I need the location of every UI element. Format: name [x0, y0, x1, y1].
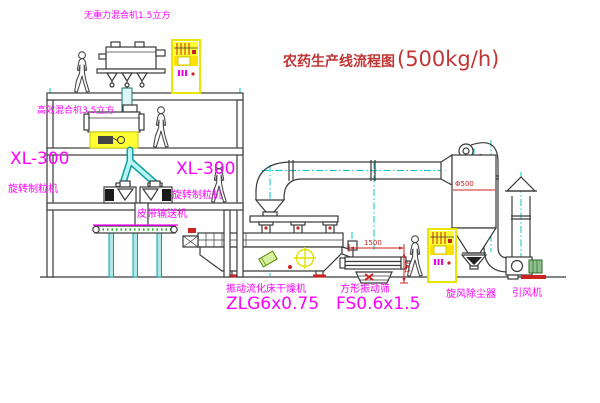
label-granulator-right-model: XL-300 — [176, 161, 235, 178]
dim-cyclone: Φ500 — [455, 181, 474, 188]
control-cabinet-upper — [172, 40, 200, 93]
induced-draft-fan — [506, 257, 546, 279]
flow-diagram-canvas: 农药生产线流程图 (500kg/h) 无重力混合机1.5立方 高效混合机3.5立… — [0, 0, 600, 403]
control-cabinet-lower — [428, 229, 456, 282]
label-fan: 引风机 — [512, 289, 542, 299]
title-capacity: (500kg/h) — [397, 47, 499, 71]
exhaust-duct — [256, 155, 452, 216]
gravity-free-mixer — [97, 42, 165, 114]
dim-screen-side: 341 — [403, 260, 410, 273]
granulator-left — [104, 181, 136, 203]
belt-conveyor — [93, 225, 196, 277]
label-granulator-right-name: 旋转制粒机 — [172, 191, 222, 201]
label-dryer-model: ZLG6x0.75 — [226, 296, 319, 313]
dim-screen-length: 1500 — [364, 240, 382, 247]
label-cyclone: 旋风除尘器 — [446, 290, 496, 300]
label-belt-conveyor: 皮带输送机 — [137, 210, 187, 220]
cyclone-dust-collector — [452, 143, 508, 272]
label-screen-model: FS0.6x1.5 — [336, 296, 420, 313]
title-chinese: 农药生产线流程图 — [283, 51, 395, 71]
label-granulator-left-name: 旋转制粒机 — [8, 185, 58, 195]
granulator-right — [140, 181, 172, 203]
diagram-title: 农药生产线流程图 (500kg/h) — [283, 47, 499, 71]
label-high-efficiency-mixer: 高效混合机3.5立方 — [37, 107, 114, 116]
fluid-bed-dryer — [183, 216, 343, 278]
person-top-platform — [75, 52, 90, 92]
label-granulator-left-model: XL-300 — [10, 151, 69, 168]
person-second-floor — [154, 107, 169, 147]
label-gravity-free-mixer: 无重力混合机1.5立方 — [84, 12, 170, 21]
